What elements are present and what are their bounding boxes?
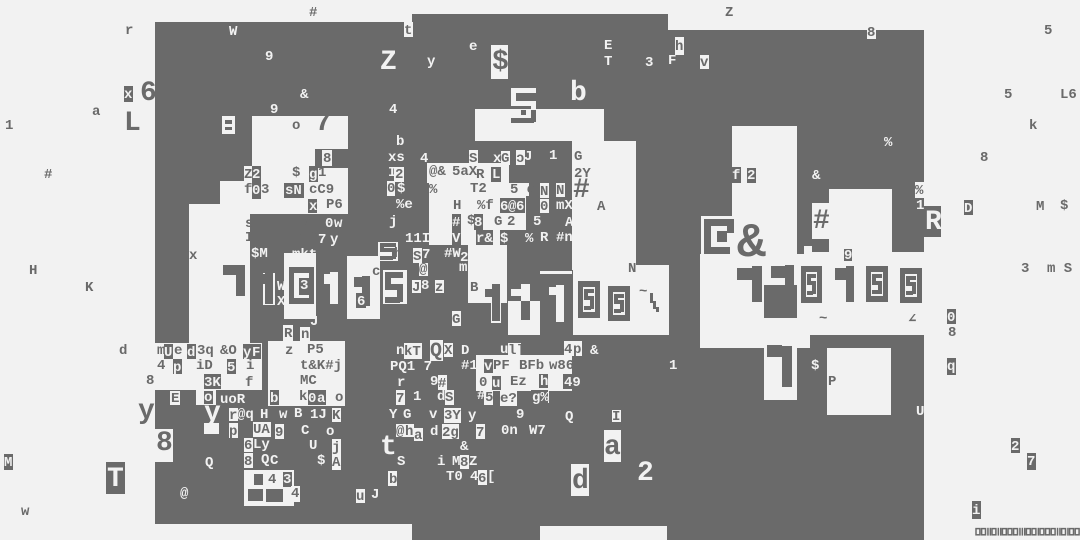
svg-text:%: % xyxy=(429,182,438,198)
svg-text:v: v xyxy=(700,55,709,71)
svg-text:Ez: Ez xyxy=(510,374,527,390)
svg-text:h: h xyxy=(394,246,402,262)
svg-text:P5: P5 xyxy=(307,342,324,358)
svg-text:g%: g% xyxy=(532,390,549,406)
svg-text:[: [ xyxy=(487,469,495,485)
svg-text:3: 3 xyxy=(1021,261,1029,277)
svg-text:B: B xyxy=(294,406,303,422)
svg-text:q: q xyxy=(947,359,955,375)
svg-text:8: 8 xyxy=(980,150,988,166)
svg-text:R: R xyxy=(284,326,293,342)
svg-text:8: 8 xyxy=(146,373,154,389)
svg-text:%f: %f xyxy=(477,198,494,214)
svg-text:8: 8 xyxy=(948,325,956,341)
svg-text:#: # xyxy=(452,215,460,231)
svg-text:a: a xyxy=(317,391,326,407)
svg-text:y: y xyxy=(427,54,436,70)
svg-text:I: I xyxy=(612,409,620,425)
svg-text:Q: Q xyxy=(205,455,213,471)
svg-text:3: 3 xyxy=(645,55,653,71)
svg-text:W: W xyxy=(229,24,238,40)
svg-text:6: 6 xyxy=(516,199,524,215)
svg-text:0: 0 xyxy=(308,391,316,407)
svg-text:W: W xyxy=(277,279,286,295)
svg-text:&: & xyxy=(590,343,599,359)
svg-text:a: a xyxy=(92,104,101,120)
svg-text:H: H xyxy=(29,263,37,279)
svg-text:R: R xyxy=(540,230,549,246)
svg-text:#: # xyxy=(309,5,317,21)
svg-text:5: 5 xyxy=(485,390,493,406)
svg-text:d: d xyxy=(187,345,195,361)
svg-text:3Y: 3Y xyxy=(444,408,461,424)
svg-text:&O: &O xyxy=(220,343,237,359)
svg-text:4: 4 xyxy=(268,472,276,488)
svg-text:f: f xyxy=(732,168,740,184)
svg-text:G: G xyxy=(494,214,502,230)
svg-text:V: V xyxy=(452,231,461,247)
svg-text:U: U xyxy=(309,438,317,454)
svg-text:C: C xyxy=(270,453,279,469)
svg-text:$: $ xyxy=(1060,198,1068,214)
svg-text:9: 9 xyxy=(270,102,278,118)
svg-text:7: 7 xyxy=(396,391,404,407)
svg-text:t&K#j: t&K#j xyxy=(300,358,342,374)
svg-text:Z: Z xyxy=(469,454,477,470)
svg-text:H: H xyxy=(453,198,461,214)
svg-text:t: t xyxy=(380,432,397,463)
svg-text:9: 9 xyxy=(275,425,283,441)
svg-text:kT: kT xyxy=(404,344,421,360)
svg-text:b: b xyxy=(270,391,278,407)
svg-text:5: 5 xyxy=(1044,23,1052,39)
svg-text:$: $ xyxy=(397,181,405,197)
svg-text:o: o xyxy=(292,118,300,134)
svg-text:x: x xyxy=(124,87,133,103)
svg-text:d: d xyxy=(430,424,438,440)
svg-text:6: 6 xyxy=(140,78,157,109)
svg-text:Z: Z xyxy=(725,5,733,21)
svg-text:6: 6 xyxy=(244,438,252,454)
svg-text:2: 2 xyxy=(252,167,260,183)
svg-text:N: N xyxy=(540,184,548,200)
svg-text:5: 5 xyxy=(533,214,541,230)
svg-text:E: E xyxy=(604,38,612,54)
svg-text:$: $ xyxy=(292,165,300,181)
svg-text:5: 5 xyxy=(1004,87,1012,103)
svg-text:Q: Q xyxy=(565,409,573,425)
svg-text:b: b xyxy=(570,78,587,109)
svg-text:y: y xyxy=(468,408,477,424)
svg-text:y: y xyxy=(330,232,339,248)
svg-text:3q: 3q xyxy=(197,343,214,359)
svg-text:PQ1 7: PQ1 7 xyxy=(390,359,432,375)
svg-text:J: J xyxy=(310,314,318,330)
svg-text:R: R xyxy=(925,207,942,238)
svg-text:1: 1 xyxy=(5,118,13,134)
svg-text:G: G xyxy=(452,312,460,328)
svg-text:y: y xyxy=(138,396,155,427)
svg-text:j: j xyxy=(389,214,397,230)
svg-text:L: L xyxy=(492,167,500,183)
svg-text:$: $ xyxy=(500,231,508,247)
svg-text:@q: @q xyxy=(237,407,254,423)
svg-text:n: n xyxy=(301,327,309,343)
svg-text:M: M xyxy=(4,455,12,471)
svg-text:$: $ xyxy=(492,47,509,78)
svg-text:J: J xyxy=(371,487,379,503)
svg-text:T2: T2 xyxy=(470,181,487,197)
svg-text:5: 5 xyxy=(227,360,235,376)
svg-text:@: @ xyxy=(396,424,405,440)
svg-text:xs: xs xyxy=(388,150,405,166)
svg-text:e: e xyxy=(469,39,477,55)
svg-text:j: j xyxy=(332,440,340,456)
svg-text:4: 4 xyxy=(420,151,428,167)
svg-text:~: ~ xyxy=(819,311,827,327)
svg-text:v: v xyxy=(429,407,438,423)
svg-text:8: 8 xyxy=(244,454,252,470)
svg-text:M: M xyxy=(1036,199,1044,215)
svg-text:2: 2 xyxy=(1011,439,1019,455)
svg-text:F: F xyxy=(668,53,676,69)
svg-text:9: 9 xyxy=(844,248,852,264)
svg-text:w: w xyxy=(334,216,343,232)
svg-text:g: g xyxy=(309,167,317,183)
svg-text:iD: iD xyxy=(196,358,213,374)
svg-text:5aX: 5aX xyxy=(452,164,478,180)
svg-text:a: a xyxy=(414,428,423,444)
svg-text:D: D xyxy=(461,343,469,359)
svg-text:o: o xyxy=(326,424,334,440)
svg-text:8: 8 xyxy=(156,428,173,459)
svg-text:0: 0 xyxy=(252,183,260,199)
svg-text:@&: @& xyxy=(429,164,446,180)
svg-text:Y: Y xyxy=(389,407,398,423)
svg-text:Z: Z xyxy=(380,47,397,78)
svg-text:b: b xyxy=(389,472,397,488)
svg-text:f: f xyxy=(245,375,253,391)
svg-text:sN: sN xyxy=(285,183,302,199)
svg-text:8: 8 xyxy=(421,278,429,294)
svg-text:N: N xyxy=(556,183,564,199)
svg-text:0: 0 xyxy=(540,199,548,215)
svg-text:a: a xyxy=(604,432,621,463)
svg-text:0: 0 xyxy=(947,310,955,326)
svg-text:p: p xyxy=(229,424,237,440)
svg-text:k: k xyxy=(299,389,307,405)
svg-text:cC9: cC9 xyxy=(309,182,334,198)
svg-text:mkt: mkt xyxy=(292,247,317,263)
svg-text:PF: PF xyxy=(493,358,510,374)
svg-text:T: T xyxy=(107,464,124,495)
svg-text:C: C xyxy=(301,423,310,439)
svg-text:P6: P6 xyxy=(326,197,343,213)
svg-text:P: P xyxy=(828,374,836,390)
svg-text:r: r xyxy=(125,23,133,39)
svg-text:9Vh: 9Vh xyxy=(294,214,319,230)
svg-text:x: x xyxy=(189,248,198,264)
svg-text:c: c xyxy=(294,230,302,246)
svg-text:4: 4 xyxy=(291,486,299,502)
svg-text:X: X xyxy=(277,294,286,310)
svg-text:Iq: Iq xyxy=(245,230,262,246)
svg-text:~: ~ xyxy=(639,284,647,300)
svg-text:p: p xyxy=(173,360,181,376)
svg-text:T0: T0 xyxy=(446,469,463,485)
svg-text:x: x xyxy=(309,199,318,215)
svg-text:U: U xyxy=(916,404,924,420)
svg-text:2: 2 xyxy=(747,168,755,184)
svg-text:Ly: Ly xyxy=(253,437,270,453)
svg-text:z: z xyxy=(435,280,443,296)
svg-text:&: & xyxy=(300,87,309,103)
svg-text:c: c xyxy=(372,264,380,280)
svg-text:8: 8 xyxy=(474,215,482,231)
svg-text:k: k xyxy=(1029,118,1037,134)
svg-text:B: B xyxy=(470,280,479,296)
svg-text:#: # xyxy=(813,206,830,237)
svg-text:N: N xyxy=(628,261,636,277)
svg-text:Q: Q xyxy=(261,452,269,468)
svg-text:i: i xyxy=(437,454,445,470)
svg-text:49: 49 xyxy=(564,375,581,391)
svg-text:w: w xyxy=(279,407,288,423)
svg-text:i: i xyxy=(972,503,980,519)
svg-text:J: J xyxy=(412,280,420,296)
svg-text:9: 9 xyxy=(516,407,524,423)
svg-text:&: & xyxy=(460,439,469,455)
svg-text:7: 7 xyxy=(1027,454,1035,470)
svg-text:7: 7 xyxy=(476,425,484,441)
svg-text:v: v xyxy=(484,359,493,375)
svg-text:@: @ xyxy=(419,262,428,278)
svg-text:2g: 2g xyxy=(442,425,459,441)
svg-text:#n: #n xyxy=(556,230,573,246)
svg-text:L6: L6 xyxy=(1060,87,1077,103)
svg-text:9: 9 xyxy=(265,49,273,65)
svg-text:H: H xyxy=(260,407,268,423)
svg-text:2: 2 xyxy=(637,458,654,489)
svg-text:$M: $M xyxy=(251,246,268,262)
svg-text:r&: r& xyxy=(476,231,493,247)
svg-text:&: & xyxy=(737,217,766,271)
svg-text:$: $ xyxy=(811,358,819,374)
svg-text:%e: %e xyxy=(396,197,413,213)
svg-text:m: m xyxy=(459,260,467,276)
svg-text:4: 4 xyxy=(157,358,165,374)
svg-text:A: A xyxy=(332,455,341,471)
svg-text:G: G xyxy=(403,407,411,423)
svg-text:1: 1 xyxy=(549,148,557,164)
svg-text:o: o xyxy=(335,390,343,406)
svg-text:6: 6 xyxy=(478,471,486,487)
svg-text:S: S xyxy=(397,454,405,470)
svg-text:W7: W7 xyxy=(529,423,546,439)
svg-text:0n: 0n xyxy=(501,423,518,439)
svg-text:d: d xyxy=(572,466,589,497)
svg-text:i: i xyxy=(246,358,254,374)
svg-text:K: K xyxy=(85,280,94,296)
svg-text:1: 1 xyxy=(669,358,677,374)
svg-text:h: h xyxy=(675,39,683,55)
svg-text:h: h xyxy=(540,374,548,390)
svg-text:w: w xyxy=(21,504,30,520)
svg-text:0: 0 xyxy=(387,181,395,197)
svg-text:A: A xyxy=(597,199,606,215)
svg-text:G: G xyxy=(574,149,582,165)
svg-text:5 o: 5 o xyxy=(510,182,535,198)
svg-text:u: u xyxy=(356,489,364,505)
svg-text:w86: w86 xyxy=(549,358,574,374)
svg-text:7: 7 xyxy=(422,247,430,263)
svg-text:D: D xyxy=(964,201,972,217)
svg-text:1: 1 xyxy=(916,198,924,214)
svg-text:MC: MC xyxy=(300,373,317,389)
svg-text:d: d xyxy=(119,343,127,359)
svg-text:7: 7 xyxy=(315,108,332,139)
svg-text:BFb: BFb xyxy=(519,358,544,374)
svg-text:3: 3 xyxy=(261,182,269,198)
svg-text:11I: 11I xyxy=(405,231,430,247)
svg-text:b: b xyxy=(396,134,404,150)
svg-text:&: & xyxy=(812,168,821,184)
svg-text:A: A xyxy=(565,215,574,231)
svg-text:%: % xyxy=(525,231,534,247)
svg-text:G: G xyxy=(501,151,509,167)
svg-text:X: X xyxy=(444,343,453,359)
svg-text:3: 3 xyxy=(300,278,308,294)
svg-text:2: 2 xyxy=(507,214,515,230)
svg-text:#1: #1 xyxy=(461,358,478,374)
svg-text:m S: m S xyxy=(1047,261,1072,277)
svg-text:E: E xyxy=(171,391,179,407)
svg-text:UA: UA xyxy=(253,422,270,438)
svg-text:$: $ xyxy=(317,453,325,469)
svg-text:e?: e? xyxy=(500,391,517,407)
svg-text:t: t xyxy=(404,23,412,39)
svg-text:#: # xyxy=(44,167,52,183)
svg-text:S: S xyxy=(445,390,453,406)
svg-text:1J: 1J xyxy=(310,407,327,423)
svg-text:4: 4 xyxy=(389,102,397,118)
svg-text:3K: 3K xyxy=(204,375,221,391)
svg-text:1: 1 xyxy=(413,389,421,405)
svg-text:z: z xyxy=(285,343,293,359)
svg-text:J: J xyxy=(524,149,532,165)
svg-text:p: p xyxy=(573,342,581,358)
svg-text:%: % xyxy=(884,135,893,151)
svg-text:%: % xyxy=(915,183,924,199)
svg-text:e: e xyxy=(174,343,182,359)
svg-text:T: T xyxy=(604,54,612,70)
svg-text:#: # xyxy=(573,175,590,206)
svg-text:r: r xyxy=(397,375,405,391)
svg-text:uoR: uoR xyxy=(220,392,246,408)
svg-text:@: @ xyxy=(180,486,189,502)
svg-text:1: 1 xyxy=(318,165,326,181)
svg-text:K: K xyxy=(332,408,341,424)
svg-text:6: 6 xyxy=(357,294,365,310)
svg-text:L: L xyxy=(124,108,141,139)
svg-text:8: 8 xyxy=(867,25,875,41)
svg-text:∠: ∠ xyxy=(908,312,916,328)
svg-text:h: h xyxy=(405,424,413,440)
